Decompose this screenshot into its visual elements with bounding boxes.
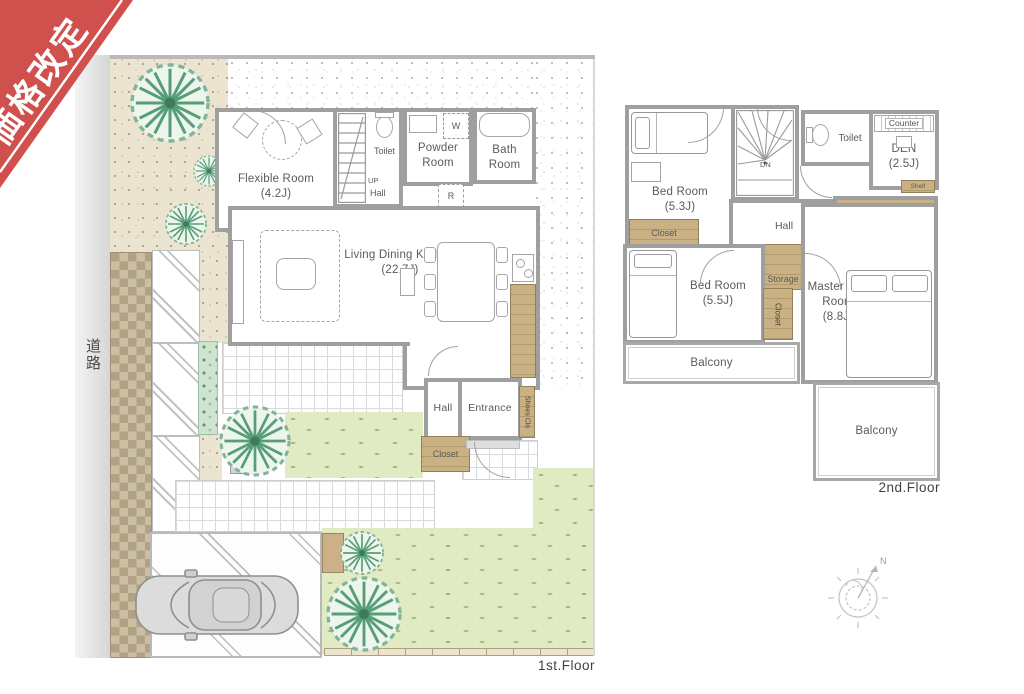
storage-label: Storage (767, 274, 799, 284)
stairs-down-label: DN (760, 160, 771, 169)
bathtub-icon (479, 113, 530, 137)
floor1-caption: 1st.Floor (500, 658, 595, 673)
toilet-1f: Toilet (368, 110, 401, 168)
closet-1f-label: Closet (433, 449, 459, 459)
compass-rose: N (820, 554, 898, 634)
washbasin-icon (409, 115, 437, 133)
closet-bedroom2-label: Closet (774, 303, 783, 326)
sofa-table (276, 258, 316, 290)
bed-single-2 (629, 250, 677, 338)
hall-2f-label: Hall (775, 220, 793, 232)
entrance-label: Entrance (468, 402, 512, 416)
closet-bedroom1: Closet (629, 219, 699, 247)
closet-bedroom2: Closet (763, 288, 793, 340)
room-hall-1f: Hall (424, 378, 462, 440)
toilet-tank-icon-2f (806, 127, 813, 143)
shoes-closet-label: Shoes Clo (524, 396, 531, 428)
tv-board (232, 240, 244, 324)
closet-1f: Closet (421, 436, 470, 472)
toilet-bowl-icon (376, 116, 393, 138)
balcony-left-label: Balcony (690, 356, 732, 371)
dining-chair (496, 247, 508, 263)
fridge-space: R (438, 184, 464, 208)
price-ribbon: 価格改定 (0, 0, 210, 210)
washer-space: W (443, 113, 469, 139)
closet-bedroom1-label: Closet (651, 228, 677, 238)
shoes-closet: Shoes Clo (519, 386, 535, 438)
shelf-label: Shelf (911, 183, 926, 190)
stove-icon (512, 254, 534, 282)
balcony-left: Balcony (623, 342, 800, 384)
dining-chair (496, 301, 508, 317)
toilet-2f-label: Toilet (838, 133, 861, 144)
balcony-right-label: Balcony (855, 424, 897, 439)
dining-chair (424, 247, 436, 263)
den-chair (896, 136, 912, 148)
flexible-room-label: Flexible Room (4.2J) (238, 172, 314, 202)
powder-room-label: Powder Room (413, 141, 463, 171)
toilet-tank-icon (375, 112, 394, 118)
car-top-view (133, 568, 301, 642)
study-desk (400, 268, 415, 296)
floor2-caption: 2nd.Floor (850, 480, 940, 495)
washer-label: W (452, 121, 461, 131)
dining-chair (424, 274, 436, 290)
den-shelf: Shelf (901, 180, 935, 193)
stairs-up (338, 113, 366, 203)
toilet-1f-label: Toilet (368, 146, 401, 156)
toilet-bowl-icon-2f (812, 124, 829, 146)
storage: Storage (761, 244, 805, 290)
hall-upper-label: Hall (370, 188, 386, 198)
bed-double (846, 270, 932, 378)
stairs-up-label: UP (368, 176, 378, 185)
bath-room-label: Bath Room (483, 143, 527, 173)
fridge-label: R (448, 191, 455, 201)
floorplan-page: 道路 (0, 0, 1024, 694)
dining-chair (424, 301, 436, 317)
room-entrance: Entrance (458, 378, 522, 440)
kitchen-counter (510, 284, 536, 378)
den-counter: Counter (874, 115, 934, 132)
desk-bedroom1 (631, 162, 661, 182)
dining-chair (496, 274, 508, 290)
bedroom1-label: Bed Room (5.3J) (652, 185, 708, 215)
balcony-right: Balcony (813, 382, 940, 481)
counter-label: Counter (885, 118, 923, 130)
hall-1f-label: Hall (434, 402, 453, 416)
dining-table (437, 242, 495, 322)
compass-north-label: N (880, 556, 887, 566)
